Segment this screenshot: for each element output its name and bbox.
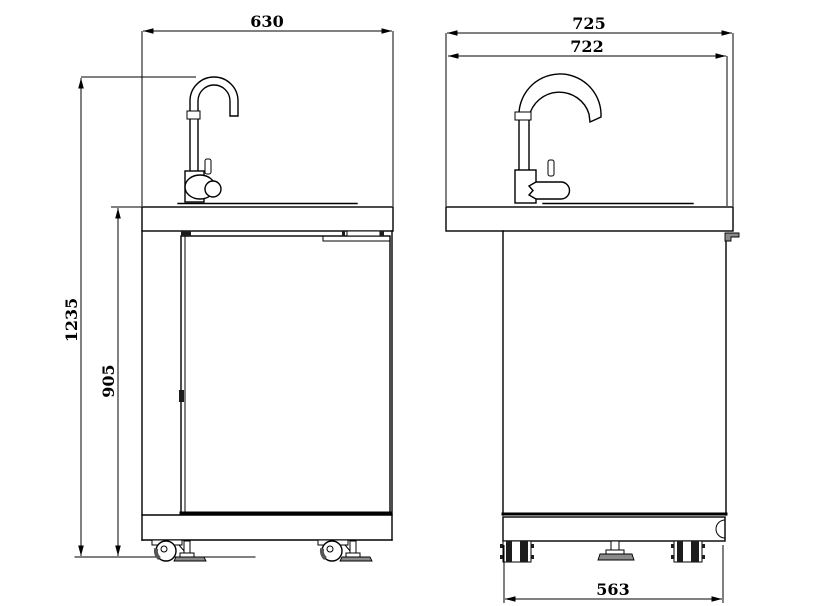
side-faucet-handle-body	[529, 182, 570, 199]
dim-side-overall-depth-label: 725	[572, 14, 605, 33]
side-plinth	[503, 517, 725, 541]
side-door-handle-bracket	[725, 233, 739, 241]
side-caster-back	[500, 541, 534, 562]
side-faucet-collar	[515, 112, 531, 120]
side-view: 725 722	[446, 14, 739, 603]
front-faucet-mixer-cap	[205, 181, 221, 197]
front-hinge-bottom	[179, 390, 184, 402]
dim-side-base-depth-label: 563	[596, 580, 629, 599]
dim-front-overall-height: 1235	[62, 77, 196, 556]
front-caster-right	[318, 540, 372, 561]
front-caster-left	[152, 540, 206, 561]
front-view: 630 1235 905	[62, 12, 393, 561]
front-faucet-collar	[187, 111, 200, 119]
dim-front-overall-height-label: 1235	[62, 298, 81, 343]
side-caster-front	[671, 541, 705, 562]
front-worktop	[142, 207, 393, 231]
front-faucet-gooseneck	[190, 77, 238, 172]
side-faucet	[515, 74, 601, 203]
drawing-page: 630 1235 905	[0, 0, 833, 606]
side-faucet-gooseneck	[519, 74, 601, 171]
dim-front-width-label: 630	[250, 12, 283, 31]
side-plinth-notch	[716, 520, 725, 538]
technical-drawing-canvas: 630 1235 905	[0, 0, 833, 606]
side-leveling-foot	[598, 541, 634, 560]
side-cabinet	[503, 231, 739, 515]
dim-front-width: 630	[142, 12, 393, 206]
front-faucet-lever	[205, 159, 211, 174]
front-hinge-top	[181, 231, 191, 236]
front-faucet	[185, 77, 238, 202]
dim-front-worktop-height: 905	[99, 207, 142, 556]
side-worktop	[446, 207, 733, 231]
dim-side-worktop-depth-label: 722	[570, 37, 603, 56]
front-door-handle	[347, 231, 380, 236]
dim-front-worktop-height-label: 905	[99, 364, 118, 397]
dim-side-worktop-depth: 722	[448, 37, 727, 206]
front-door-handle-recess	[323, 236, 390, 241]
side-faucet-lever	[548, 160, 554, 176]
front-door	[179, 231, 390, 513]
front-cabinet	[142, 231, 392, 540]
